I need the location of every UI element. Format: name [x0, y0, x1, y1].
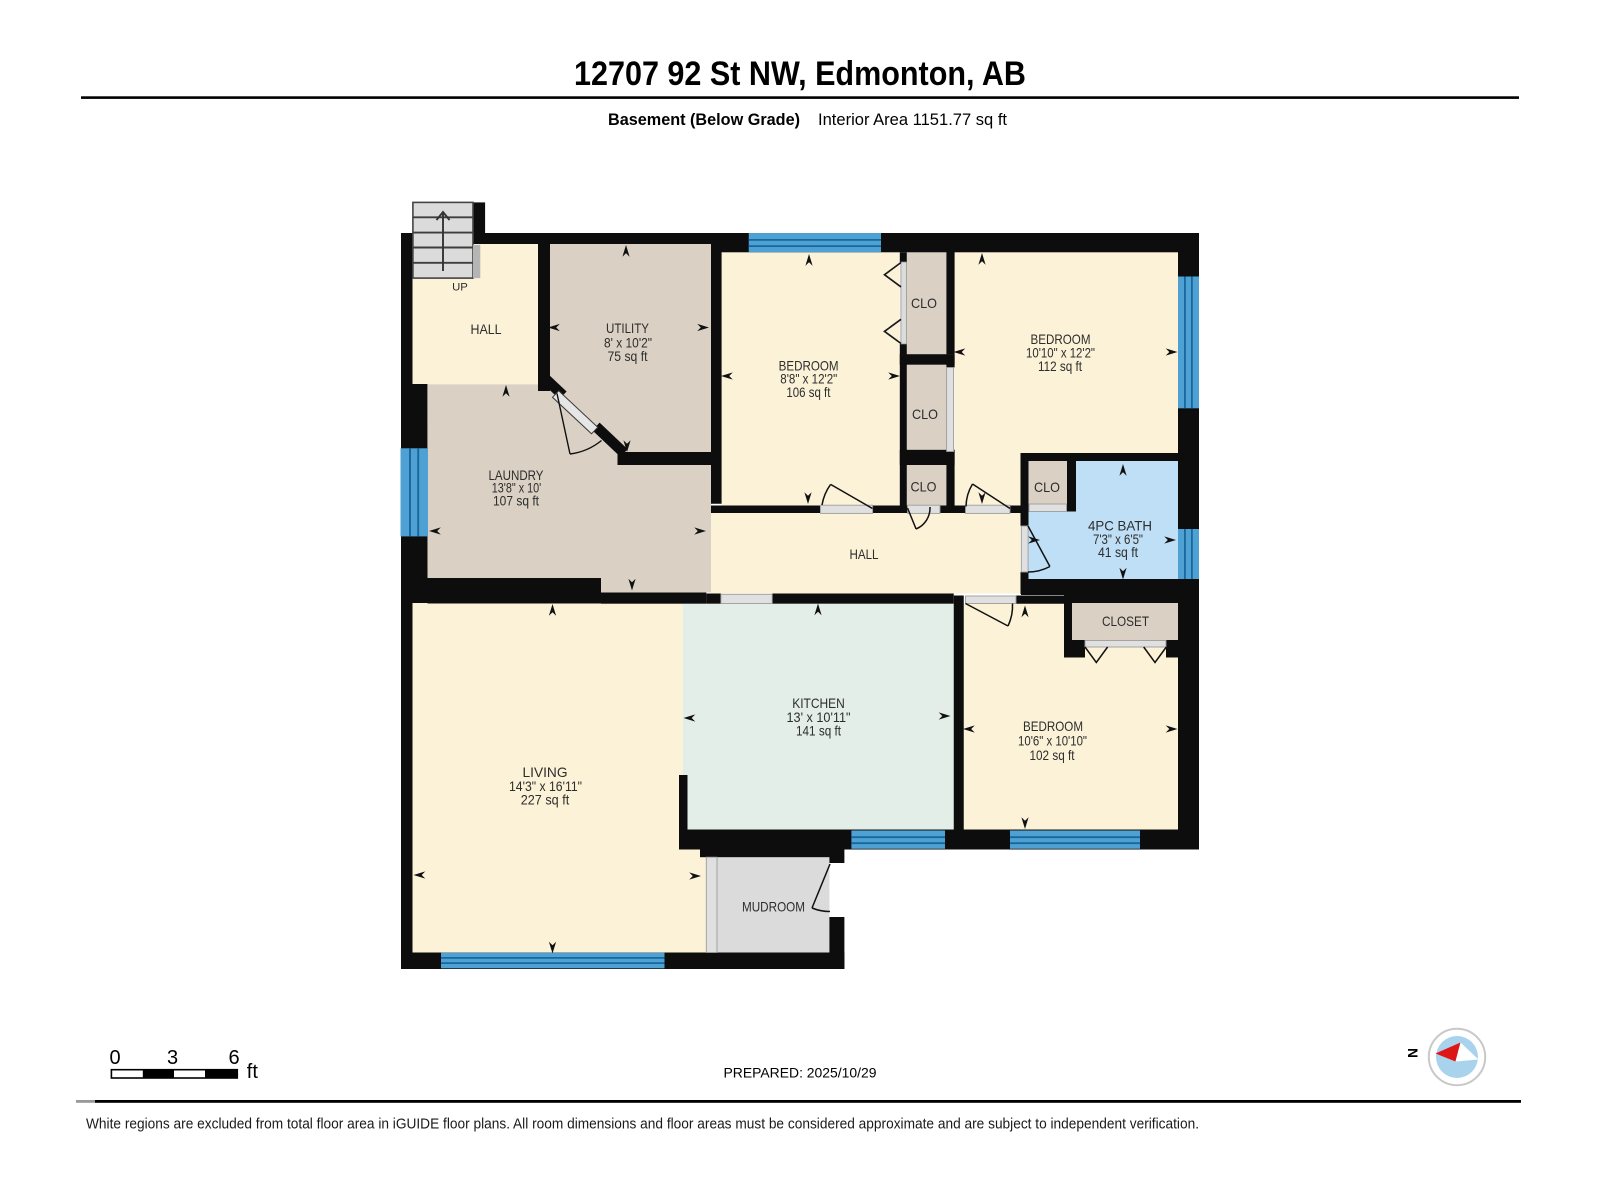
- svg-text:LIVING: LIVING: [523, 765, 568, 780]
- svg-text:41 sq ft: 41 sq ft: [1098, 545, 1138, 560]
- svg-text:102 sq ft: 102 sq ft: [1030, 748, 1075, 763]
- svg-text:6: 6: [228, 1047, 239, 1069]
- svg-text:106 sq ft: 106 sq ft: [786, 385, 830, 400]
- svg-text:10'6" x 10'10": 10'6" x 10'10": [1018, 734, 1087, 749]
- svg-text:PREPARED: 2025/10/29: PREPARED: 2025/10/29: [724, 1065, 877, 1081]
- svg-text:CLO: CLO: [911, 480, 937, 495]
- svg-text:N: N: [1406, 1048, 1421, 1058]
- svg-text:UP: UP: [452, 282, 468, 294]
- svg-text:CLO: CLO: [1034, 480, 1060, 495]
- svg-text:CLO: CLO: [911, 296, 937, 311]
- svg-text:CLO: CLO: [912, 407, 938, 422]
- svg-text:HALL: HALL: [850, 547, 879, 562]
- svg-text:ft: ft: [247, 1061, 259, 1083]
- svg-text:HALL: HALL: [471, 322, 502, 337]
- svg-text:CLOSET: CLOSET: [1102, 614, 1149, 629]
- svg-text:0: 0: [109, 1047, 120, 1069]
- svg-text:112 sq ft: 112 sq ft: [1038, 359, 1082, 374]
- svg-text:107 sq ft: 107 sq ft: [493, 494, 539, 509]
- svg-text:MUDROOM: MUDROOM: [742, 900, 805, 915]
- svg-text:Interior Area 1151.77 sq ft: Interior Area 1151.77 sq ft: [818, 110, 1007, 129]
- svg-text:227 sq ft: 227 sq ft: [521, 793, 570, 808]
- svg-text:UTILITY: UTILITY: [606, 321, 649, 336]
- svg-text:Basement (Below Grade): Basement (Below Grade): [608, 110, 800, 129]
- svg-text:3: 3: [167, 1047, 178, 1069]
- svg-text:BEDROOM: BEDROOM: [1023, 719, 1083, 734]
- svg-text:141 sq ft: 141 sq ft: [796, 724, 841, 739]
- svg-text:75 sq ft: 75 sq ft: [608, 349, 648, 364]
- svg-text:12707 92 St NW, Edmonton, AB: 12707 92 St NW, Edmonton, AB: [574, 55, 1026, 93]
- svg-text:KITCHEN: KITCHEN: [792, 696, 845, 711]
- svg-text:White regions are excluded fro: White regions are excluded from total fl…: [86, 1116, 1199, 1133]
